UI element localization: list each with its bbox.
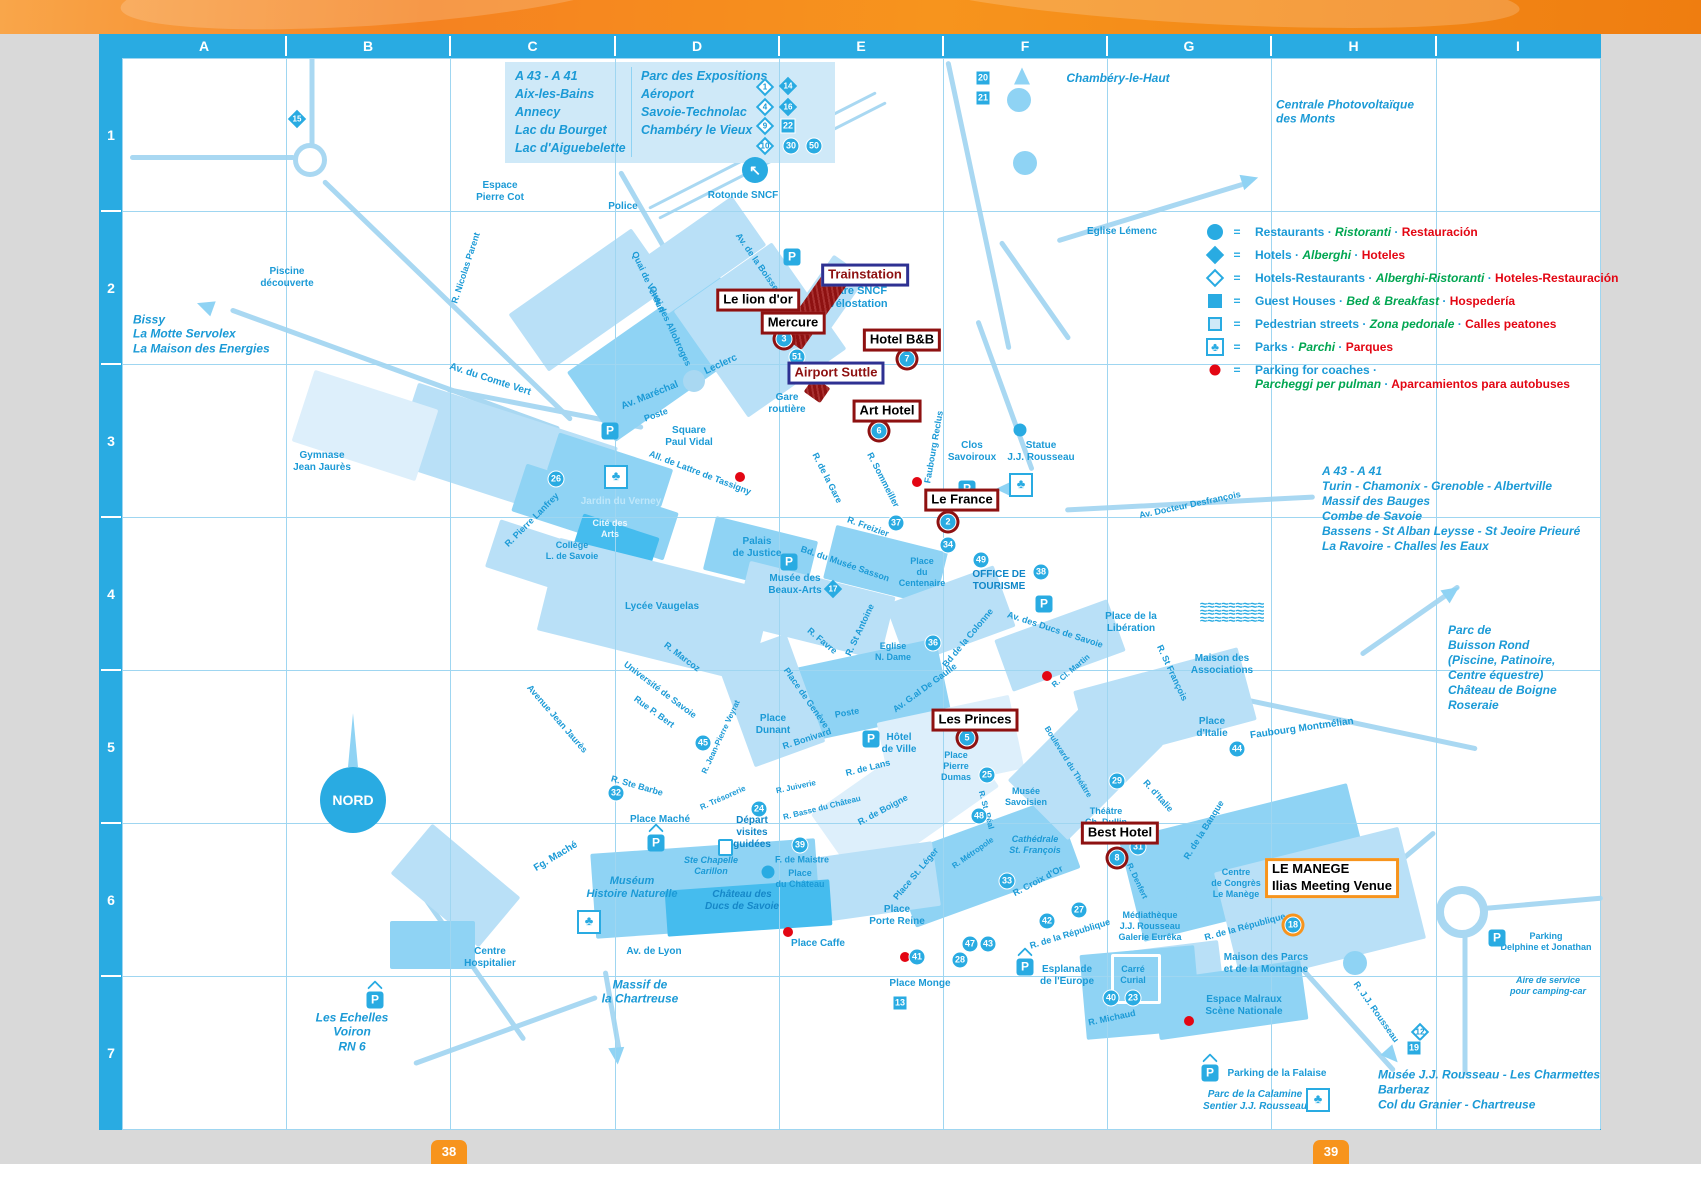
poi-marker-41: 41 (909, 949, 926, 966)
map-label: Centre de Congrès Le Manège (1211, 867, 1261, 899)
parking-icon: P (1017, 959, 1034, 976)
parking-icon: P (863, 731, 880, 748)
parking-icon: P (1489, 930, 1506, 947)
legend-equals: = (1233, 340, 1240, 354)
grid-separator (1106, 36, 1108, 56)
poi-marker-49: 49 (973, 552, 990, 569)
map-label: Maison des Associations (1191, 653, 1253, 677)
legend-text: Guest Houses · Bed & Breakfast · Hospede… (1255, 294, 1515, 308)
map-label: Palais de Justice (733, 536, 782, 560)
poi-marker-24: 24 (751, 801, 768, 818)
grid-separator (101, 822, 121, 824)
poi-marker-38: 38 (1033, 564, 1050, 581)
poi-marker-number: 15 (291, 113, 304, 126)
map-junction-dot (1014, 424, 1027, 437)
legend-square-icon (1208, 294, 1222, 308)
map-label: Place Pierre Dumas (941, 750, 971, 782)
grid-row-label-1: 1 (107, 127, 115, 143)
legend-circle-icon (1207, 224, 1223, 240)
map-label: Hôtel de Ville (882, 732, 917, 756)
poi-marker-29: 29 (1109, 773, 1126, 790)
poi-marker-40: 40 (1103, 990, 1120, 1007)
poi-marker-18: 18 (1285, 917, 1302, 934)
legend-equals: = (1233, 294, 1240, 308)
map-label: Lycée Vaugelas (625, 601, 699, 613)
poi-marker-43: 43 (980, 936, 997, 953)
map-label: Square Paul Vidal (665, 425, 713, 449)
map-junction-dot (683, 370, 705, 392)
map-label: Chambéry-le-Haut (1066, 71, 1169, 85)
map-label: Gare routière (768, 392, 805, 416)
grid-line (122, 58, 1600, 59)
annotation-airport-suttle: Airport Suttle (787, 362, 884, 385)
annotation-le-france: Le France (924, 489, 999, 512)
map-label: Gymnase Jean Jaurès (293, 450, 351, 474)
poi-marker-42: 42 (1039, 913, 1056, 930)
page-number: 39 (1324, 1144, 1338, 1159)
parking-icon: P (784, 249, 801, 266)
destinations-north-list: A 43 - A 41 Aix-les-Bains Annecy Lac du … (515, 67, 626, 157)
grid-separator (778, 36, 780, 56)
map-label: Cathédrale St. François (1009, 834, 1061, 856)
poi-marker-number: 10 (761, 142, 770, 151)
legend-term: Parks (1255, 340, 1288, 354)
coach-parking-dot (1184, 1016, 1194, 1026)
grid-column-label-G: G (1184, 38, 1195, 54)
legend-text: Parks · Parchi · Parques (1255, 340, 1393, 354)
legend-term: Zona pedonale (1370, 317, 1455, 331)
map-label: Espace Malraux Scène Nationale (1205, 994, 1282, 1018)
road-arrow-icon (608, 1047, 625, 1065)
poi-marker-23: 23 (1125, 990, 1142, 1007)
legend-term: Guest Houses (1255, 294, 1336, 308)
map-label: Statue J.J. Rousseau (1007, 440, 1074, 464)
map-label: Musée des Beaux-Arts (768, 573, 821, 597)
map-label: A 43 - A 41 Turin - Chamonix - Grenoble … (1322, 464, 1580, 554)
legend-term: · (1351, 248, 1362, 262)
grid-separator (1270, 36, 1272, 56)
poi-marker-20: 20 (976, 71, 991, 86)
poi-marker-36: 36 (925, 635, 942, 652)
poi-marker-19: 19 (1407, 1041, 1422, 1056)
grid-separator (1435, 36, 1437, 56)
poi-marker-17: 17 (824, 580, 842, 598)
grid-separator (614, 36, 616, 56)
grid-line (122, 976, 1600, 977)
banner-swoosh (899, 0, 1521, 34)
road-roundabout (1436, 886, 1488, 938)
map-label: Château des Ducs de Savoie (705, 889, 779, 913)
coach-parking-dot (912, 477, 922, 487)
map-label: Place du Château (775, 868, 824, 890)
grid-column-label-B: B (363, 38, 373, 54)
map-label: Collège L. de Savoie (546, 540, 599, 562)
legend-term: Bed & Breakfast (1346, 294, 1439, 308)
legend-term: Parchi (1298, 340, 1335, 354)
road (130, 155, 295, 160)
grid-column-band (100, 34, 1600, 58)
map-label: Place Dunant (756, 713, 790, 737)
grid-line (1600, 58, 1601, 1129)
map-label: Bissy La Motte Servolex La Maison des En… (133, 312, 270, 355)
legend-term: · (1391, 225, 1402, 239)
poi-marker-number: 12 (1416, 1028, 1425, 1037)
legend-equals: = (1233, 317, 1240, 331)
annotation-le-lion-d-or: Le lion d'or (716, 289, 800, 312)
grid-column-label-F: F (1021, 38, 1030, 54)
poi-marker-7: 7 (899, 351, 916, 368)
north-compass: NORD (320, 767, 386, 833)
map-label: Aire de service pour camping-car (1510, 975, 1586, 997)
grid-line (286, 58, 287, 1129)
map-label: Place Caffe (791, 938, 845, 950)
poi-marker-27: 27 (1071, 902, 1088, 919)
map-label: Musée J.J. Rousseau - Les Charmettes Bar… (1378, 1068, 1600, 1113)
grid-column-label-A: A (199, 38, 209, 54)
poi-marker-28: 28 (952, 952, 969, 969)
coach-parking-dot (1042, 671, 1052, 681)
road-roundabout (293, 143, 327, 177)
park-tree-icon: ♣ (577, 910, 601, 934)
park-tree-icon: ♣ (1306, 1088, 1330, 1112)
map-label: Cité des Arts (592, 518, 627, 540)
map-label: Espace Pierre Cot (476, 180, 524, 204)
legend-term: · (1288, 340, 1299, 354)
legend-term: · (1439, 294, 1450, 308)
map-label: Place Maché (630, 814, 690, 826)
park-tree-icon: ♣ (604, 465, 628, 489)
legend-equals: = (1233, 225, 1240, 239)
poi-marker-number: 9 (761, 122, 770, 131)
poi-marker-30: 30 (783, 138, 800, 155)
legend-red-dot-icon (1210, 365, 1221, 376)
map-junction-dot (1013, 151, 1037, 175)
grid-row-label-7: 7 (107, 1045, 115, 1061)
poi-marker-44: 44 (1229, 741, 1246, 758)
poi-marker-number: 17 (827, 583, 840, 596)
map-page: A 43 - A 41 Aix-les-Bains Annecy Lac du … (0, 0, 1701, 1191)
legend-term: Ristoranti (1335, 225, 1391, 239)
grid-line (122, 670, 1600, 671)
legend-term: Restauración (1402, 225, 1478, 239)
map-label: Médiathèque J.J. Rousseau Galerie Eurêka (1118, 910, 1181, 942)
map-junction-dot (1157, 880, 1187, 910)
poi-marker-47: 47 (962, 936, 979, 953)
legend-equals: = (1233, 271, 1240, 285)
legend-term: · (1292, 248, 1303, 262)
road (310, 54, 315, 146)
page-number: 38 (442, 1144, 456, 1159)
banner-swoosh (118, 0, 642, 34)
map-label: Ste Chapelle Carillon (684, 855, 738, 877)
coach-parking-dot (783, 927, 793, 937)
annotation-trainstation: Trainstation (821, 264, 909, 287)
footer-white-strip (0, 1164, 1701, 1191)
grid-row-label-6: 6 (107, 892, 115, 908)
grid-separator (101, 516, 121, 518)
legend-term: Aparcamientos para autobuses (1391, 377, 1570, 391)
poi-marker-14: 14 (779, 77, 797, 95)
grid-row-label-5: 5 (107, 739, 115, 755)
page-number-tab-39: 39 (1313, 1140, 1349, 1164)
north-label: NORD (320, 767, 386, 833)
poi-marker-32: 32 (608, 785, 625, 802)
grid-row-label-2: 2 (107, 280, 115, 296)
annotation-art-hotel: Art Hotel (853, 400, 922, 423)
poi-marker-2: 2 (940, 514, 957, 531)
poi-marker-45: 45 (695, 735, 712, 752)
destinations-airport-list: Parc des Expositions Aéroport Savoie-Tec… (631, 67, 767, 157)
map-label: Parc de Buisson Rond (Piscine, Patinoire… (1448, 623, 1557, 713)
legend-term: Hotels-Restaurants (1255, 271, 1365, 285)
map-label: Place de la Libération (1105, 611, 1157, 635)
poi-marker-number: 14 (782, 80, 795, 93)
grid-column-label-H: H (1348, 38, 1358, 54)
legend-term: Calles peatones (1465, 317, 1556, 331)
legend-term: · (1365, 271, 1376, 285)
poi-marker-number: 16 (782, 101, 795, 114)
parking-icon: P (781, 554, 798, 571)
legend-term: · (1454, 317, 1465, 331)
map-junction-dot (1007, 88, 1031, 112)
parking-icon: P (1036, 596, 1053, 613)
grid-line (122, 211, 1600, 212)
legend-text: Hotels-Restaurants · Alberghi-Ristoranti… (1255, 271, 1618, 285)
poi-marker-22: 22 (781, 119, 796, 134)
map-label: F. de Maistre (775, 855, 829, 866)
road-arrow-icon (1014, 68, 1030, 85)
poi-marker-21: 21 (976, 91, 991, 106)
poi-marker-16: 16 (779, 98, 797, 116)
grid-separator (101, 363, 121, 365)
annotation-best-hotel: Best Hotel (1081, 822, 1159, 845)
grid-line (615, 58, 616, 1129)
legend-term: Pedestrian streets (1255, 317, 1359, 331)
legend-text: Parking for coaches · (1255, 363, 1377, 377)
poi-marker-6: 6 (871, 423, 888, 440)
grid-line (1436, 58, 1437, 1129)
legend-term: Hoteles-Restauración (1495, 271, 1618, 285)
map-label: Place Monge (889, 978, 950, 990)
grid-column-label-I: I (1516, 38, 1520, 54)
legend-term: Parques (1346, 340, 1393, 354)
map-label: Parking de la Falaise (1228, 1068, 1327, 1080)
legend-text: Restaurants · Ristoranti · Restauración (1255, 225, 1478, 239)
map-label: Police (608, 201, 637, 213)
poi-marker-8: 8 (1109, 850, 1126, 867)
legend-tree-icon: ♣ (1206, 338, 1224, 356)
grid-separator (285, 36, 287, 56)
city-block (390, 921, 475, 969)
map-label: Muséum Histoire Naturelle (586, 875, 677, 901)
map-junction-dot (1343, 951, 1367, 975)
north-needle-icon (348, 713, 358, 767)
poi-marker-15: 15 (288, 110, 306, 128)
map-label: Centre Hospitalier (464, 946, 516, 970)
poi-marker-34: 34 (940, 537, 957, 554)
legend-term: Alberghi-Ristoranti (1376, 271, 1485, 285)
map-label: Eglise N. Dame (875, 641, 911, 663)
map-label: Les Echelles Voiron RN 6 (316, 1010, 389, 1053)
road (1463, 935, 1468, 1075)
map-label: Parc de la Calamine Sentier J.J. Roussea… (1203, 1089, 1307, 1113)
map-label: Parking Delphine et Jonathan (1500, 931, 1591, 953)
legend-term: Hotels (1255, 248, 1292, 262)
parking-icon: P (367, 992, 384, 1009)
parking-icon: P (602, 423, 619, 440)
annotation-le-manege: LE MANEGE Ilias Meeting Venue (1265, 858, 1399, 898)
poi-marker-37: 37 (888, 515, 905, 532)
legend-equals: = (1233, 363, 1240, 377)
map-label: Eglise Lémenc (1087, 226, 1157, 238)
legend-term: Parking for coaches · (1255, 363, 1377, 377)
grid-column-label-C: C (527, 38, 537, 54)
map-junction-dot (762, 866, 775, 879)
map-label: Place d'Italie (1196, 716, 1227, 740)
map-label: ≈≈≈≈≈≈≈≈≈ ≈≈≈≈≈≈≈≈≈ ≈≈≈≈≈≈≈≈≈ (1200, 602, 1264, 623)
grid-separator (101, 210, 121, 212)
map-label: Centrale Photovoltaïque des Monts (1276, 98, 1414, 127)
grid-column-label-D: D (692, 38, 702, 54)
grid-line (450, 58, 451, 1129)
grid-line (122, 58, 123, 1129)
page-number-tab-38: 38 (431, 1140, 467, 1164)
legend-term: · (1484, 271, 1495, 285)
map-label: Place du Centenaire (899, 556, 946, 588)
map-label: Place Porte Reine (869, 904, 925, 928)
legend-term: · (1359, 317, 1370, 331)
legend-text: Parcheggi per pulman · Aparcamientos par… (1255, 377, 1570, 391)
annotation-hotel-b-b: Hotel B&B (863, 329, 941, 352)
map-label: Jardin du Verney (581, 496, 662, 508)
legend-term: · (1335, 340, 1346, 354)
legend-term: Restaurants (1255, 225, 1324, 239)
map-label: Massif de la Chartreuse (602, 978, 679, 1007)
parking-icon: P (1202, 1065, 1219, 1082)
legend-term: Alberghi (1302, 248, 1351, 262)
poi-marker-25: 25 (979, 767, 996, 784)
legend-equals: = (1233, 248, 1240, 262)
orange-banner (0, 0, 1701, 34)
city-block (718, 839, 733, 856)
poi-marker-13: 13 (893, 996, 908, 1011)
park-tree-icon: ♣ (1009, 473, 1033, 497)
grid-separator (449, 36, 451, 56)
poi-marker-5: 5 (959, 730, 976, 747)
poi-marker-26: 26 (548, 471, 565, 488)
rotonde-arrow-icon: ↖ (742, 157, 768, 183)
legend-text: Pedestrian streets · Zona pedonale · Cal… (1255, 317, 1556, 331)
grid-line (122, 1129, 1600, 1130)
annotation-mercure: Mercure (761, 312, 826, 335)
legend-term: Hospedería (1450, 294, 1515, 308)
map-label: Esplanade de l'Europe (1040, 964, 1094, 988)
parking-icon: P (648, 835, 665, 852)
poi-marker-number: 4 (761, 103, 770, 112)
map-label: Rotonde SNCF (708, 190, 779, 202)
legend-term: · (1336, 294, 1347, 308)
legend-term: · (1324, 225, 1335, 239)
grid-column-label-E: E (856, 38, 865, 54)
poi-marker-33: 33 (999, 873, 1016, 890)
grid-line (943, 58, 944, 1129)
map-label: Clos Savoiroux (948, 440, 996, 464)
annotation-les-princes: Les Princes (932, 709, 1019, 732)
legend-term: Parcheggi per pulman (1255, 377, 1381, 391)
map-label: OFFICE DE TOURISME (972, 569, 1025, 593)
map-label: Av. de Lyon (626, 946, 681, 958)
coach-parking-dot (735, 472, 745, 482)
poi-marker-39: 39 (792, 837, 809, 854)
legend-term: · (1381, 377, 1391, 391)
poi-marker-50: 50 (806, 138, 823, 155)
poi-marker-number: 1 (761, 83, 770, 92)
grid-separator (101, 669, 121, 671)
legend-text: Hotels · Alberghi · Hoteles (1255, 248, 1405, 262)
grid-row-label-4: 4 (107, 586, 115, 602)
map-label: Maison des Parcs et de la Montagne (1224, 952, 1308, 976)
grid-separator (101, 975, 121, 977)
grid-line (1107, 58, 1108, 1129)
grid-row-label-3: 3 (107, 433, 115, 449)
map-label: Départ visites guidées (733, 815, 771, 851)
map-label: Musée Savoisien (1005, 786, 1047, 808)
grid-separator (942, 36, 944, 56)
poi-marker-48: 48 (971, 808, 988, 825)
map-label: Piscine découverte (260, 266, 313, 290)
legend-term: Hoteles (1362, 248, 1405, 262)
legend-square-light-icon (1208, 317, 1222, 331)
